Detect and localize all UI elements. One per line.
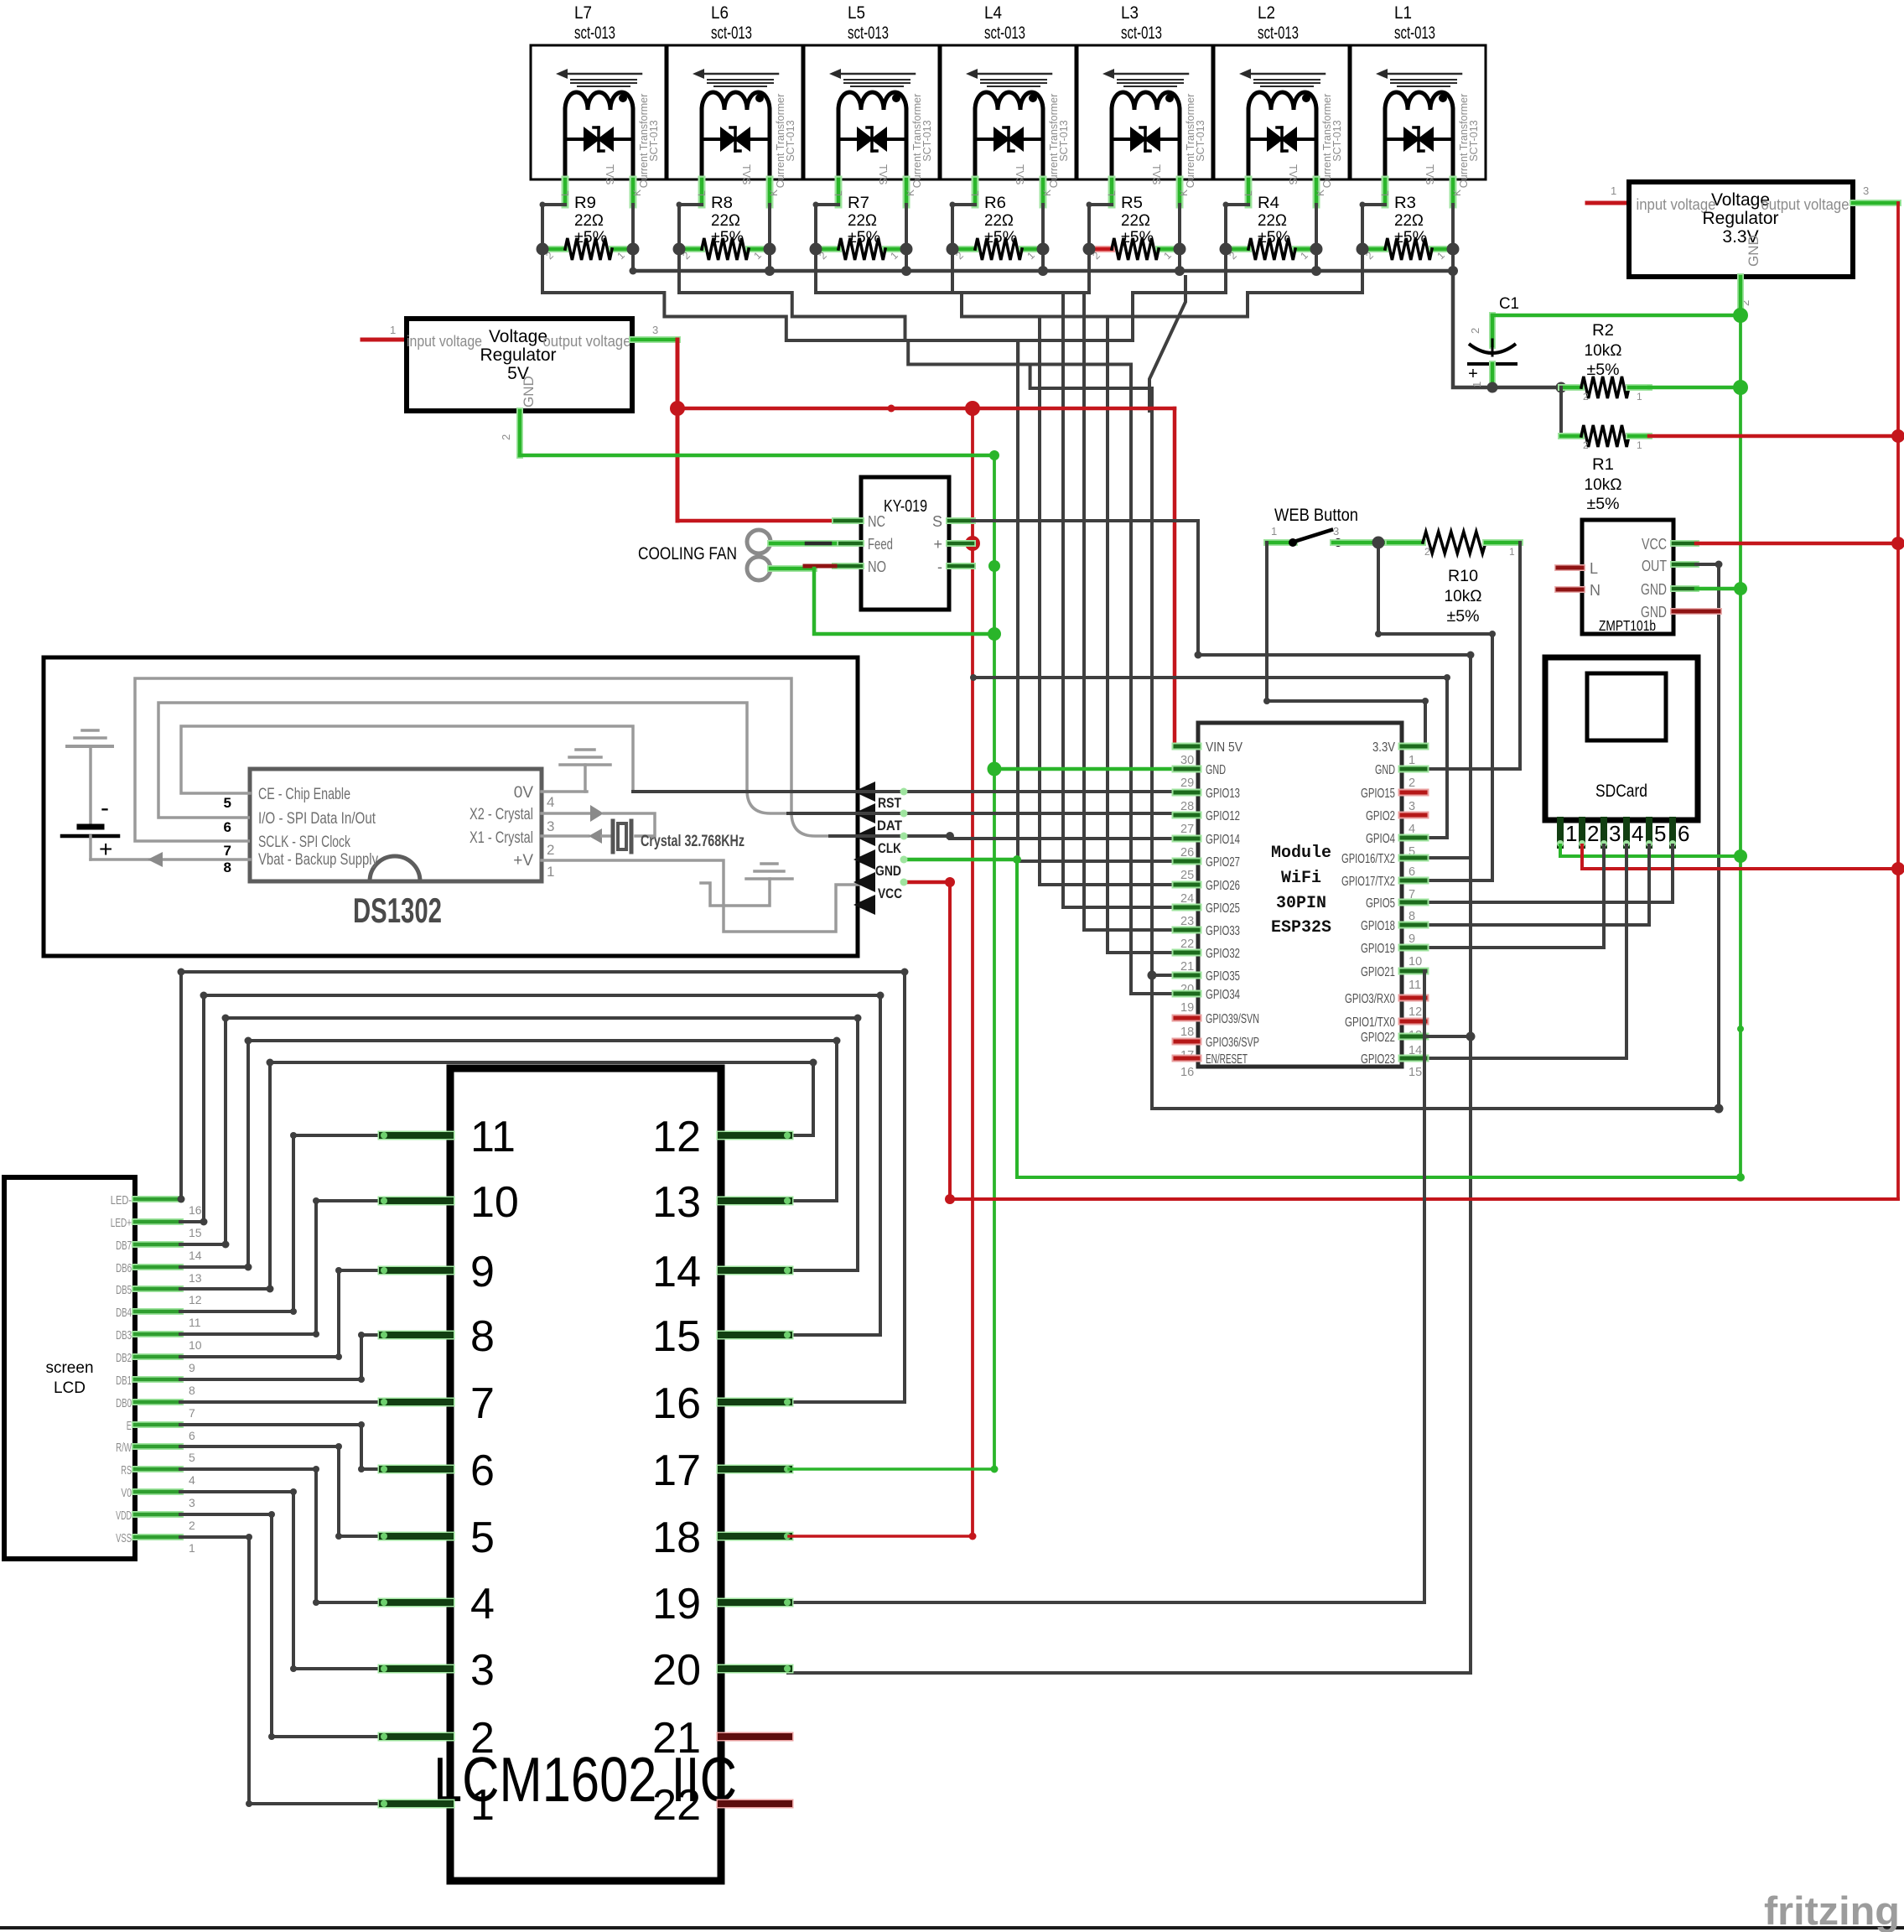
- svg-text:13: 13: [189, 1271, 202, 1285]
- svg-text:22Ω: 22Ω: [574, 211, 604, 230]
- svg-text:22Ω: 22Ω: [1394, 211, 1424, 230]
- svg-text:SDCard: SDCard: [1595, 782, 1647, 801]
- svg-text:GPIO13: GPIO13: [1206, 787, 1240, 801]
- svg-text:TVS: TVS: [1424, 164, 1435, 184]
- svg-text:K: K: [905, 190, 916, 196]
- svg-text:R4: R4: [1258, 194, 1279, 212]
- svg-text:7: 7: [224, 843, 231, 859]
- svg-text:19: 19: [652, 1580, 701, 1628]
- svg-text:29: 29: [1180, 776, 1194, 790]
- svg-text:GPIO25: GPIO25: [1206, 901, 1240, 916]
- svg-text:GPIO16/TX2: GPIO16/TX2: [1341, 852, 1395, 866]
- svg-text:L: L: [1106, 190, 1118, 196]
- svg-text:22Ω: 22Ω: [848, 211, 877, 230]
- svg-text:3: 3: [470, 1646, 495, 1695]
- svg-text:TVS: TVS: [1150, 164, 1162, 184]
- svg-text:sct-013: sct-013: [848, 23, 889, 43]
- svg-text:GPIO39/SVN: GPIO39/SVN: [1206, 1012, 1259, 1026]
- svg-text:1: 1: [1565, 821, 1577, 846]
- svg-text:DS1302: DS1302: [353, 891, 442, 930]
- svg-text:GPIO35: GPIO35: [1206, 969, 1240, 984]
- svg-text:SCT-013: SCT-013: [785, 120, 796, 161]
- svg-text:1: 1: [189, 1541, 195, 1555]
- svg-text:L4: L4: [984, 3, 1002, 23]
- svg-text:10: 10: [189, 1338, 202, 1352]
- svg-text:sct-013: sct-013: [711, 23, 752, 43]
- svg-text:4: 4: [547, 794, 554, 810]
- svg-text:output voltage: output voltage: [543, 332, 631, 350]
- svg-text:±5%: ±5%: [1587, 495, 1620, 513]
- svg-text:L3: L3: [1121, 3, 1139, 23]
- svg-text:V0: V0: [121, 1487, 132, 1500]
- svg-text:7: 7: [189, 1406, 195, 1420]
- svg-text:3: 3: [1609, 821, 1621, 846]
- svg-text:GPIO18: GPIO18: [1361, 919, 1395, 933]
- svg-text:-: -: [937, 558, 942, 575]
- svg-text:N: N: [1590, 582, 1601, 599]
- svg-text:9: 9: [470, 1248, 495, 1296]
- svg-text:GPIO15: GPIO15: [1361, 787, 1395, 801]
- svg-text:TVS: TVS: [877, 164, 889, 184]
- svg-text:GND: GND: [1375, 763, 1395, 777]
- svg-text:Crystal 32.768KHz: Crystal 32.768KHz: [641, 833, 744, 850]
- svg-text:GPIO27: GPIO27: [1206, 855, 1240, 870]
- svg-text:11: 11: [470, 1113, 516, 1161]
- svg-text:±5%: ±5%: [1447, 607, 1480, 626]
- svg-text:8: 8: [189, 1384, 195, 1397]
- svg-text:11: 11: [1409, 979, 1421, 992]
- svg-text:L: L: [833, 190, 844, 196]
- svg-text:SCT-013: SCT-013: [648, 120, 660, 161]
- svg-text:3: 3: [1863, 184, 1869, 197]
- svg-text:5: 5: [224, 795, 231, 811]
- svg-text:C1: C1: [1499, 294, 1519, 313]
- svg-text:WiFi: WiFi: [1281, 869, 1321, 888]
- svg-text:K: K: [1178, 190, 1190, 196]
- svg-text:GPIO26: GPIO26: [1206, 879, 1240, 893]
- svg-text:10kΩ: 10kΩ: [1585, 475, 1622, 494]
- svg-text:K: K: [1315, 190, 1326, 196]
- svg-text:18: 18: [652, 1514, 701, 1562]
- svg-text:6: 6: [189, 1429, 195, 1442]
- svg-text:RS: RS: [121, 1464, 132, 1478]
- svg-text:TVS: TVS: [604, 164, 615, 184]
- svg-text:10: 10: [1409, 955, 1422, 969]
- svg-text:3: 3: [189, 1496, 195, 1509]
- svg-text:20: 20: [652, 1646, 701, 1695]
- svg-text:27: 27: [1180, 823, 1194, 836]
- svg-text:L6: L6: [711, 3, 729, 23]
- svg-text:sct-013: sct-013: [1121, 23, 1162, 43]
- svg-text:6: 6: [470, 1446, 495, 1495]
- svg-text:10kΩ: 10kΩ: [1445, 587, 1482, 605]
- svg-text:7: 7: [470, 1379, 495, 1428]
- svg-text:21: 21: [652, 1714, 701, 1763]
- svg-text:CLK: CLK: [878, 840, 902, 856]
- svg-text:2: 2: [547, 842, 554, 858]
- svg-text:DB1: DB1: [116, 1374, 132, 1388]
- svg-text:6: 6: [224, 819, 231, 835]
- svg-text:1: 1: [1637, 439, 1642, 451]
- svg-text:15: 15: [652, 1312, 701, 1361]
- svg-text:-: -: [101, 794, 109, 822]
- svg-text:3: 3: [547, 818, 554, 834]
- svg-text:CE - Chip Enable: CE - Chip Enable: [258, 786, 350, 803]
- svg-text:22Ω: 22Ω: [1258, 211, 1287, 230]
- svg-text:GPIO22: GPIO22: [1361, 1031, 1395, 1045]
- svg-text:GPIO14: GPIO14: [1206, 833, 1240, 847]
- svg-text:1: 1: [1471, 382, 1483, 387]
- svg-text:5: 5: [189, 1451, 195, 1464]
- svg-text:2: 2: [1583, 439, 1589, 451]
- svg-text:SCT-013: SCT-013: [1331, 120, 1343, 161]
- svg-text:DB3: DB3: [116, 1329, 132, 1343]
- svg-text:L: L: [1379, 190, 1391, 196]
- svg-text:input voltage: input voltage: [407, 332, 482, 350]
- svg-text:L: L: [1243, 190, 1254, 196]
- svg-text:1: 1: [470, 1781, 495, 1830]
- svg-text:16: 16: [189, 1203, 202, 1217]
- svg-text:L: L: [696, 190, 708, 196]
- svg-text:R2: R2: [1592, 321, 1614, 340]
- svg-text:1: 1: [1509, 546, 1515, 558]
- svg-text:GPIO34: GPIO34: [1206, 988, 1240, 1002]
- svg-text:Voltage: Voltage: [489, 327, 547, 346]
- svg-text:15: 15: [1409, 1066, 1422, 1079]
- svg-text:EN/RESET: EN/RESET: [1206, 1052, 1248, 1067]
- svg-text:GPIO21: GPIO21: [1361, 965, 1395, 979]
- svg-text:GPIO1/TX0: GPIO1/TX0: [1345, 1015, 1395, 1030]
- svg-text:L1: L1: [1394, 3, 1412, 23]
- svg-text:sct-013: sct-013: [1394, 23, 1435, 43]
- svg-text:KY-019: KY-019: [884, 497, 927, 516]
- svg-text:10: 10: [470, 1178, 519, 1227]
- svg-text:30PIN: 30PIN: [1276, 894, 1326, 913]
- svg-text:E: E: [127, 1420, 132, 1433]
- svg-text:R1: R1: [1592, 455, 1614, 474]
- svg-text:DB6: DB6: [116, 1262, 132, 1275]
- svg-text:1: 1: [1271, 525, 1277, 538]
- svg-text:4: 4: [189, 1473, 195, 1487]
- svg-text:DB2: DB2: [116, 1352, 132, 1365]
- svg-text:5: 5: [470, 1514, 495, 1562]
- svg-text:screen: screen: [45, 1359, 93, 1377]
- svg-text:SCT-013: SCT-013: [921, 120, 933, 161]
- svg-text:GPIO36/SVP: GPIO36/SVP: [1206, 1036, 1259, 1050]
- svg-text:1: 1: [547, 864, 554, 880]
- svg-text:14: 14: [189, 1249, 202, 1262]
- svg-text:14: 14: [652, 1248, 701, 1296]
- svg-text:R7: R7: [848, 194, 869, 212]
- svg-text:K: K: [1451, 190, 1463, 196]
- svg-text:R6: R6: [984, 194, 1006, 212]
- svg-text:GPIO4: GPIO4: [1366, 832, 1395, 846]
- svg-text:17: 17: [652, 1446, 701, 1495]
- svg-text:2: 2: [1469, 328, 1481, 334]
- svg-text:Module: Module: [1271, 844, 1331, 863]
- svg-text:2: 2: [500, 434, 512, 440]
- svg-text:0V: 0V: [514, 784, 534, 802]
- svg-text:2: 2: [189, 1519, 195, 1532]
- svg-text:TVS: TVS: [740, 164, 752, 184]
- svg-text:R3: R3: [1394, 194, 1416, 212]
- svg-text:DAT: DAT: [877, 818, 903, 834]
- svg-text:2: 2: [1424, 546, 1430, 558]
- svg-text:6: 6: [1678, 821, 1689, 846]
- svg-text:WEB Button: WEB Button: [1274, 506, 1358, 525]
- svg-text:L7: L7: [574, 3, 592, 23]
- svg-text:GND: GND: [875, 863, 901, 879]
- svg-text:2: 2: [1583, 391, 1589, 402]
- svg-text:22Ω: 22Ω: [984, 211, 1014, 230]
- svg-text:+: +: [933, 536, 942, 553]
- svg-text:VSS: VSS: [116, 1532, 132, 1545]
- svg-text:output voltage: output voltage: [1761, 195, 1850, 213]
- svg-text:GPIO3/RX0: GPIO3/RX0: [1345, 992, 1395, 1006]
- svg-text:18: 18: [1180, 1026, 1194, 1039]
- svg-text:GPIO17/TX2: GPIO17/TX2: [1341, 875, 1395, 889]
- svg-text:S: S: [932, 513, 942, 530]
- svg-text:4: 4: [1632, 821, 1643, 846]
- svg-text:16: 16: [1180, 1066, 1194, 1079]
- svg-text:SCT-013: SCT-013: [1195, 120, 1206, 161]
- svg-text:LCD: LCD: [54, 1379, 86, 1397]
- svg-text:ESP32S: ESP32S: [1271, 918, 1331, 937]
- svg-text:3.3V: 3.3V: [1372, 740, 1396, 755]
- svg-text:4: 4: [470, 1580, 495, 1628]
- svg-text:X1 - Crystal: X1 - Crystal: [470, 829, 533, 847]
- svg-text:15: 15: [189, 1226, 202, 1239]
- svg-text:R5: R5: [1121, 194, 1143, 212]
- svg-text:2: 2: [470, 1714, 495, 1763]
- svg-text:1: 1: [1611, 184, 1616, 197]
- svg-text:25: 25: [1180, 869, 1194, 882]
- svg-text:SCT-013: SCT-013: [1468, 120, 1480, 161]
- svg-text:VDD: VDD: [116, 1509, 132, 1523]
- svg-text:TVS: TVS: [1014, 164, 1025, 184]
- svg-text:L: L: [1590, 560, 1598, 577]
- svg-text:GND: GND: [1641, 581, 1667, 598]
- svg-text:R8: R8: [711, 194, 733, 212]
- svg-text:COOLING FAN: COOLING FAN: [638, 544, 737, 563]
- svg-text:19: 19: [1180, 1001, 1194, 1015]
- svg-text:10kΩ: 10kΩ: [1585, 341, 1622, 360]
- svg-text:DB7: DB7: [116, 1239, 132, 1253]
- svg-text:GND: GND: [521, 376, 537, 408]
- svg-text:VCC: VCC: [1642, 536, 1667, 553]
- svg-text:OUT: OUT: [1642, 558, 1667, 574]
- svg-text:K: K: [768, 190, 780, 196]
- svg-text:NO: NO: [868, 558, 886, 575]
- svg-text:1: 1: [1637, 391, 1642, 402]
- svg-text:fritzing: fritzing: [1764, 1888, 1900, 1932]
- svg-text:DB0: DB0: [116, 1397, 132, 1410]
- svg-text:+: +: [1468, 365, 1478, 383]
- svg-text:GPIO23: GPIO23: [1361, 1052, 1395, 1067]
- svg-text:L: L: [969, 190, 981, 196]
- svg-text:2: 2: [1587, 821, 1599, 846]
- svg-text:22Ω: 22Ω: [1121, 211, 1150, 230]
- svg-text:13: 13: [652, 1178, 701, 1227]
- svg-text:LED+: LED+: [111, 1217, 132, 1230]
- svg-text:NC: NC: [868, 513, 885, 530]
- svg-text:GPIO32: GPIO32: [1206, 947, 1240, 961]
- svg-text:L5: L5: [848, 3, 865, 23]
- svg-text:22Ω: 22Ω: [711, 211, 740, 230]
- svg-text:12: 12: [652, 1113, 701, 1161]
- svg-text:Vbat - Backup Supply: Vbat - Backup Supply: [258, 851, 378, 869]
- svg-text:22: 22: [652, 1781, 701, 1830]
- svg-text:sct-013: sct-013: [984, 23, 1025, 43]
- svg-text:+V: +V: [513, 852, 533, 870]
- svg-text:GPIO5: GPIO5: [1366, 896, 1395, 911]
- svg-text:GPIO19: GPIO19: [1361, 942, 1395, 956]
- svg-text:VCC: VCC: [878, 885, 902, 901]
- svg-text:RST: RST: [878, 795, 902, 811]
- svg-text:L: L: [559, 190, 571, 196]
- svg-text:GPIO2: GPIO2: [1366, 809, 1395, 823]
- svg-text:5: 5: [1654, 821, 1666, 846]
- svg-text:LED-: LED-: [111, 1194, 132, 1207]
- svg-text:R10: R10: [1448, 567, 1478, 585]
- svg-text:9: 9: [189, 1361, 195, 1374]
- svg-text:R/W: R/W: [116, 1441, 132, 1455]
- svg-text:TVS: TVS: [1287, 164, 1299, 184]
- svg-text:12: 12: [1409, 1005, 1422, 1019]
- svg-text:DB5: DB5: [116, 1284, 132, 1297]
- svg-text:sct-013: sct-013: [1258, 23, 1299, 43]
- svg-text:GND: GND: [1746, 235, 1761, 267]
- svg-text:VIN 5V: VIN 5V: [1206, 740, 1243, 755]
- svg-text:8: 8: [470, 1312, 495, 1361]
- svg-text:X2 - Crystal: X2 - Crystal: [470, 806, 533, 823]
- svg-text:R9: R9: [574, 194, 596, 212]
- svg-text:DB4: DB4: [116, 1306, 132, 1320]
- svg-text:GPIO33: GPIO33: [1206, 924, 1240, 938]
- svg-text:Feed: Feed: [868, 536, 893, 553]
- svg-text:GND: GND: [1641, 604, 1667, 621]
- svg-text:8: 8: [224, 860, 231, 875]
- svg-text:2: 2: [1409, 776, 1415, 790]
- svg-text:K: K: [1041, 190, 1053, 196]
- svg-text:K: K: [631, 190, 643, 196]
- svg-text:1: 1: [390, 324, 396, 336]
- svg-text:L2: L2: [1258, 3, 1275, 23]
- svg-text:16: 16: [652, 1379, 701, 1428]
- svg-text:GND: GND: [1206, 763, 1226, 777]
- svg-text:GPIO12: GPIO12: [1206, 809, 1240, 823]
- svg-text:sct-013: sct-013: [574, 23, 615, 43]
- svg-text:3: 3: [652, 324, 658, 336]
- svg-text:SCT-013: SCT-013: [1058, 120, 1070, 161]
- svg-text:I/O - SPI Data In/Out: I/O - SPI Data In/Out: [258, 810, 376, 828]
- svg-text:11: 11: [189, 1316, 201, 1329]
- svg-text:3: 3: [1333, 525, 1339, 538]
- svg-text:SCLK - SPI Clock: SCLK - SPI Clock: [258, 834, 350, 851]
- svg-text:12: 12: [189, 1293, 202, 1306]
